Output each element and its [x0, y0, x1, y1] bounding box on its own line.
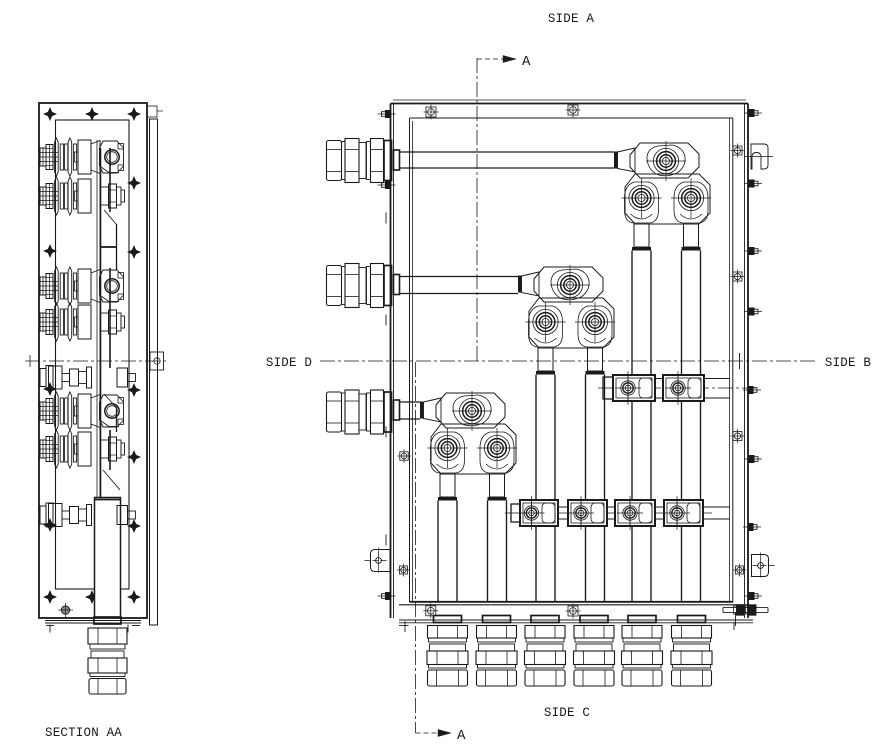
- svg-text:SIDE A: SIDE A: [548, 12, 595, 26]
- svg-text:SIDE C: SIDE C: [544, 706, 590, 720]
- svg-text:SECTION AA: SECTION AA: [45, 726, 122, 740]
- svg-text:SIDE B: SIDE B: [825, 356, 872, 370]
- svg-text:SIDE D: SIDE D: [266, 356, 312, 370]
- svg-text:A: A: [457, 728, 466, 744]
- svg-text:A: A: [522, 54, 531, 70]
